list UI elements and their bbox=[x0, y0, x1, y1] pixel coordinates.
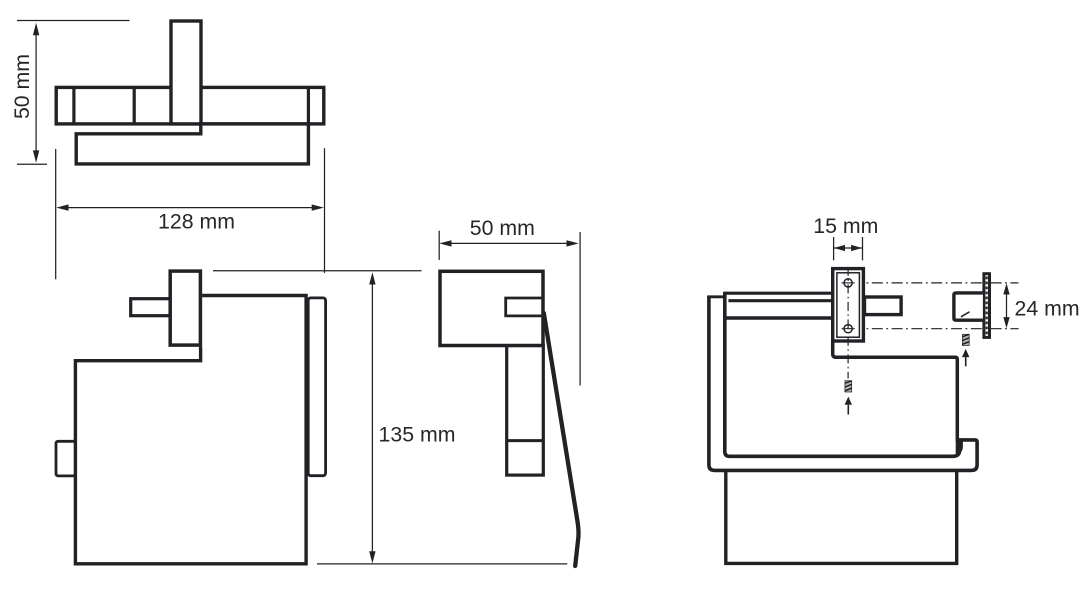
svg-text:135 mm: 135 mm bbox=[379, 423, 456, 447]
svg-text:50 mm: 50 mm bbox=[10, 54, 34, 119]
svg-text:15 mm: 15 mm bbox=[813, 214, 878, 238]
svg-text:128 mm: 128 mm bbox=[158, 210, 235, 234]
svg-text:24 mm: 24 mm bbox=[1015, 296, 1080, 320]
svg-text:50 mm: 50 mm bbox=[470, 216, 535, 240]
